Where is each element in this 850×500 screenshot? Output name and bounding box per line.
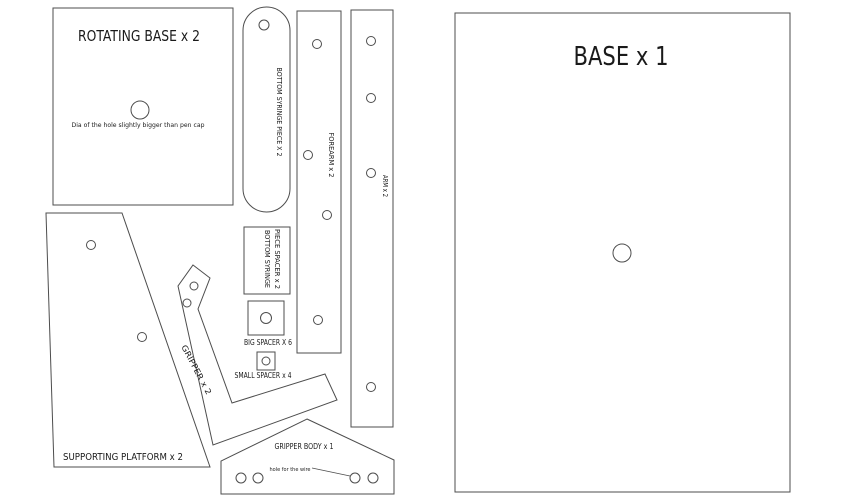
arm-outline (351, 10, 393, 427)
bottom-syringe-piece-spacer: BOTTOM SYRINGE PIECE SPACER x 2 (244, 227, 290, 294)
hole (368, 473, 378, 483)
wire-hole-pointer-line (312, 468, 350, 476)
hole (253, 473, 263, 483)
hole (138, 333, 147, 342)
hole (262, 357, 270, 365)
hole (367, 169, 376, 178)
small-spacer-piece: SMALL SPACER x 4 (235, 352, 292, 380)
base-label: BASE x 1 (574, 42, 669, 72)
supporting-platform-label: SUPPORTING PLATFORM x 2 (63, 452, 183, 463)
hole (367, 37, 376, 46)
hole (183, 299, 191, 307)
hole (313, 40, 322, 49)
big-spacer-label: BIG SPACER X 6 (244, 338, 292, 347)
small-spacer-label: SMALL SPACER x 4 (235, 371, 292, 380)
forearm-piece: FOREARM x 2 (297, 11, 341, 353)
hole (367, 94, 376, 103)
rotating-base-label: ROTATING BASE x 2 (78, 27, 200, 45)
syringe-spacer-label-line1: BOTTOM SYRINGE (263, 230, 271, 288)
hole (367, 383, 376, 392)
rotating-base-note: Dia of the hole slightly bigger than pen… (72, 121, 205, 129)
arm-piece: ARM x 2 (351, 10, 393, 427)
hole (314, 316, 323, 325)
supporting-platform-outline (46, 213, 210, 467)
syringe-spacer-label-line2: PIECE SPACER x 2 (273, 229, 281, 289)
wire-hole (350, 473, 360, 483)
gripper-label: GRIPPER x 2 (179, 343, 213, 396)
hole (323, 211, 332, 220)
hole (259, 20, 269, 30)
forearm-label: FOREARM x 2 (327, 133, 335, 178)
hole (304, 151, 313, 160)
hole (236, 473, 246, 483)
forearm-outline (297, 11, 341, 353)
arm-label: ARM x 2 (381, 175, 389, 197)
hole (190, 282, 198, 290)
pen-cap-hole (131, 101, 149, 119)
hole (87, 241, 96, 250)
gripper-body-piece: GRIPPER BODY x 1 hole for the wire (221, 419, 394, 494)
gripper-body-label: GRIPPER BODY x 1 (275, 442, 334, 451)
hole (261, 313, 272, 324)
bottom-syringe-label: BOTTOM SYRINGE PIECE X 2 (275, 68, 283, 157)
bottom-syringe-piece: BOTTOM SYRINGE PIECE X 2 (243, 7, 290, 212)
base-center-hole (613, 244, 631, 262)
supporting-platform-piece: SUPPORTING PLATFORM x 2 (46, 213, 210, 467)
rotating-base-piece: ROTATING BASE x 2 Dia of the hole slight… (53, 8, 233, 205)
base-piece: BASE x 1 (455, 13, 790, 492)
gripper-body-outline (221, 419, 394, 494)
parts-template-diagram: ROTATING BASE x 2 Dia of the hole slight… (0, 0, 850, 500)
gripper-body-note: hole for the wire (270, 467, 312, 473)
big-spacer-piece: BIG SPACER X 6 (244, 301, 292, 347)
